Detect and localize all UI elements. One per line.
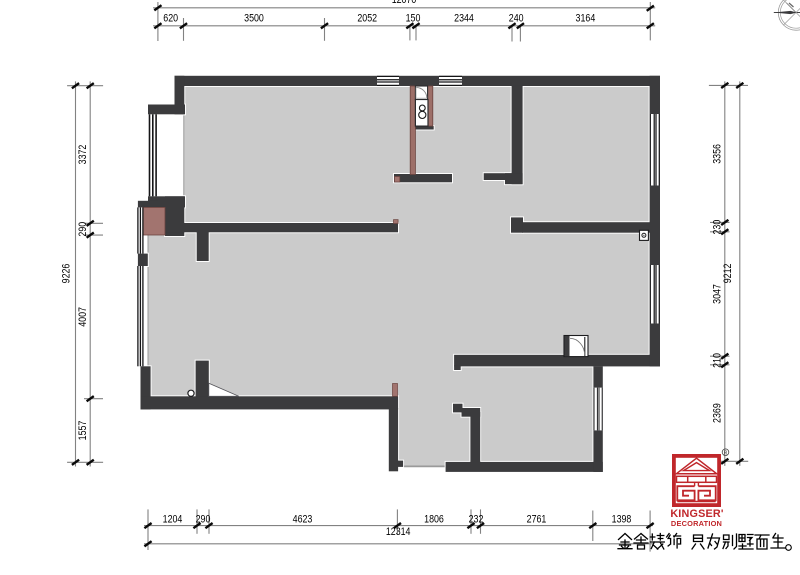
svg-text:2369: 2369 xyxy=(712,403,724,423)
svg-text:1398: 1398 xyxy=(612,514,632,526)
svg-text:2052: 2052 xyxy=(357,13,377,25)
svg-text:150: 150 xyxy=(406,13,421,25)
svg-text:230: 230 xyxy=(712,220,724,235)
svg-text:3372: 3372 xyxy=(77,145,89,165)
svg-text:2761: 2761 xyxy=(527,514,547,526)
svg-text:DECORATION: DECORATION xyxy=(671,519,722,528)
svg-text:1557: 1557 xyxy=(77,421,89,441)
svg-text:12070: 12070 xyxy=(392,0,417,6)
svg-text:232: 232 xyxy=(469,514,484,526)
svg-text:9212: 9212 xyxy=(722,264,734,284)
svg-text:4623: 4623 xyxy=(293,514,313,526)
svg-text:R: R xyxy=(724,451,728,457)
svg-text:3164: 3164 xyxy=(576,13,596,25)
svg-text:620: 620 xyxy=(163,13,178,25)
svg-text:210: 210 xyxy=(712,353,724,368)
svg-text:9226: 9226 xyxy=(61,264,73,284)
svg-text:2344: 2344 xyxy=(454,13,474,25)
svg-text:12314: 12314 xyxy=(386,526,411,538)
svg-text:240: 240 xyxy=(509,13,524,25)
svg-text:3047: 3047 xyxy=(712,284,724,304)
svg-text:290: 290 xyxy=(77,222,89,237)
svg-text:290: 290 xyxy=(196,514,211,526)
svg-text:3356: 3356 xyxy=(712,144,724,164)
svg-text:3500: 3500 xyxy=(244,13,264,25)
svg-text:1806: 1806 xyxy=(424,514,444,526)
svg-text:4007: 4007 xyxy=(77,307,89,327)
svg-text:1204: 1204 xyxy=(163,514,183,526)
